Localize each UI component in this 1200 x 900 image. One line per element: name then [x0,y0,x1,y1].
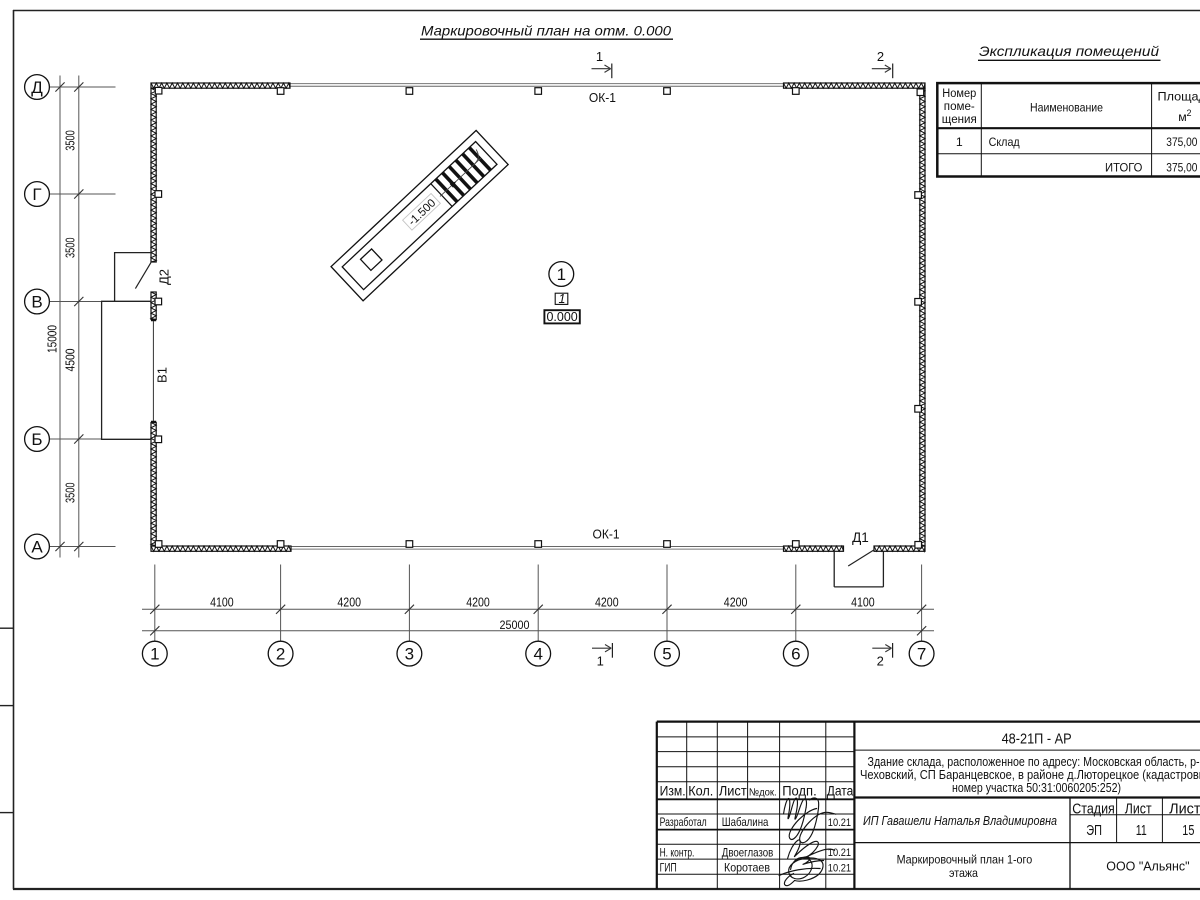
svg-text:25000: 25000 [500,618,530,632]
svg-text:1: 1 [150,645,159,664]
svg-text:3500: 3500 [63,238,78,258]
svg-text:Д1: Д1 [852,530,869,545]
svg-text:10.21: 10.21 [828,862,851,874]
svg-text:4200: 4200 [595,595,619,610]
svg-text:48-21П - АР: 48-21П - АР [1002,732,1072,748]
svg-text:Шабалина: Шабалина [722,815,769,829]
svg-text:м: м [1178,110,1186,124]
svg-text:номер участка 50:31:0060205:25: номер участка 50:31:0060205:252) [952,780,1121,795]
svg-text:1: 1 [557,265,566,284]
svg-text:3500: 3500 [63,130,78,151]
svg-text:2: 2 [877,654,884,669]
svg-text:3: 3 [405,645,414,664]
svg-text:Маркировочный план на отм. 0.0: Маркировочный план на отм. 0.000 [421,24,671,39]
svg-text:Двоеглазов: Двоеглазов [722,845,774,859]
svg-text:поме-: поме- [944,99,975,113]
svg-text:4100: 4100 [851,595,875,610]
svg-text:4: 4 [533,645,542,664]
svg-text:Склад: Склад [989,135,1020,149]
svg-text:1: 1 [597,654,604,669]
svg-text:15000: 15000 [45,325,60,353]
svg-text:Изм.: Изм. [660,783,686,799]
svg-text:1: 1 [596,49,603,64]
svg-text:Стадия: Стадия [1072,802,1115,818]
svg-text:В1: В1 [155,367,170,383]
svg-text:Маркировочный план 1-ого: Маркировочный план 1-ого [897,852,1033,866]
svg-text:ИП Гавашели Наталья Владимиров: ИП Гавашели Наталья Владимировна [863,813,1057,828]
svg-text:0.000: 0.000 [546,310,577,324]
svg-text:5: 5 [662,645,671,664]
svg-text:Подп.: Подп. [782,783,817,799]
svg-text:Коротаев: Коротаев [724,861,770,875]
svg-text:щения: щения [942,112,977,126]
svg-text:4200: 4200 [337,595,361,610]
svg-text:10.21: 10.21 [828,817,851,829]
svg-text:11: 11 [1136,822,1147,839]
svg-text:2: 2 [276,645,285,664]
svg-text:ЭП: ЭП [1086,822,1102,839]
svg-text:4200: 4200 [724,595,748,610]
svg-text:4100: 4100 [210,595,234,610]
svg-text:Б: Б [31,430,42,449]
svg-text:3500: 3500 [63,483,78,504]
svg-text:А: А [31,537,43,556]
svg-text:Дата: Дата [827,783,854,799]
svg-text:Г: Г [32,185,41,204]
svg-text:Площадь: Площадь [1158,90,1200,104]
svg-text:Экспликация помещений: Экспликация помещений [979,44,1159,59]
svg-text:2: 2 [877,49,884,64]
svg-text:Кол.: Кол. [688,783,713,799]
svg-text:ООО "Альянс": ООО "Альянс" [1106,858,1190,873]
svg-text:№док.: №док. [749,786,777,798]
svg-text:ГИП: ГИП [660,861,677,875]
svg-text:Лист: Лист [1125,802,1152,818]
svg-text:Листов: Листов [1169,802,1200,818]
svg-text:В: В [31,292,42,311]
svg-text:4200: 4200 [466,595,490,610]
svg-text:ИТОГО: ИТОГО [1105,161,1142,175]
svg-text:Наименование: Наименование [1030,101,1103,115]
svg-text:этажа: этажа [949,866,978,880]
svg-text:4500: 4500 [63,349,78,372]
svg-text:375,00: 375,00 [1166,135,1197,149]
svg-text:Д2: Д2 [157,269,172,285]
svg-text:Н. контр.: Н. контр. [660,845,695,859]
svg-text:Д: Д [31,78,43,97]
svg-text:Номер: Номер [942,86,976,100]
svg-text:ОК-1: ОК-1 [593,527,620,542]
svg-text:6: 6 [791,645,800,664]
svg-text:7: 7 [917,645,926,664]
svg-text:Лист: Лист [719,783,747,799]
svg-text:2: 2 [1186,108,1191,118]
svg-text:ОК-1: ОК-1 [589,90,616,105]
svg-text:Разработал: Разработал [660,815,707,829]
svg-text:15: 15 [1182,822,1194,839]
svg-text:1: 1 [956,135,963,149]
svg-text:375,00: 375,00 [1166,161,1197,175]
svg-text:1: 1 [559,292,566,306]
